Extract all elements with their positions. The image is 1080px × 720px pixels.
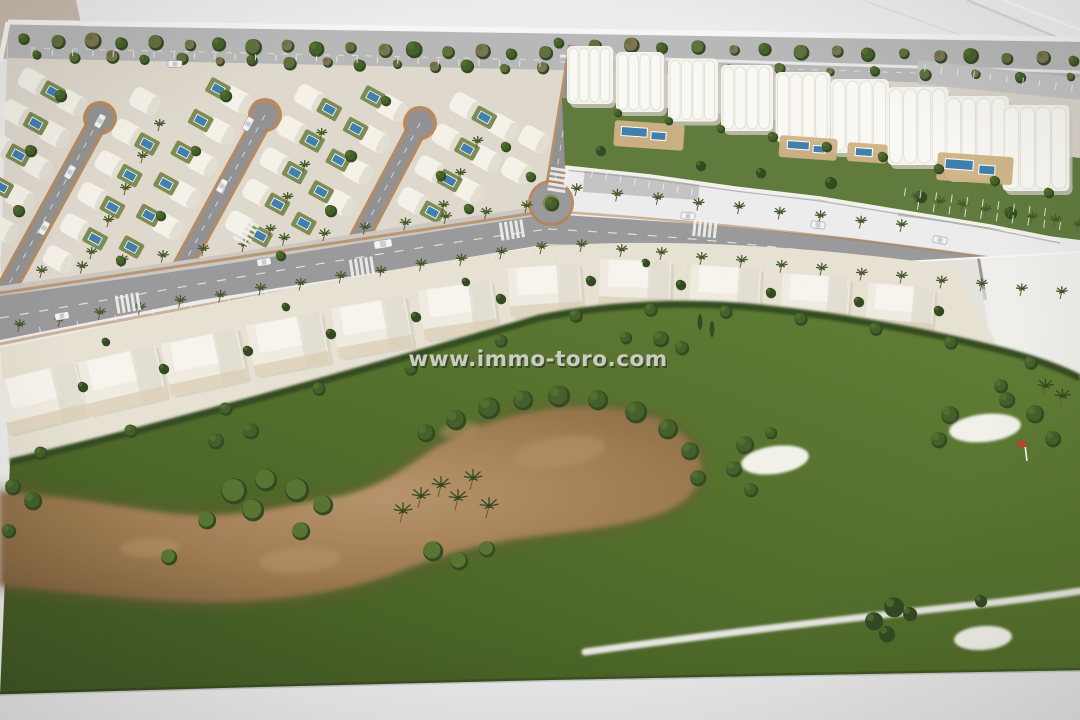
- model-photo-canvas: www.immo-toro.com www.immo-toro.com: [0, 0, 1080, 720]
- photo-architectural-model: www.immo-toro.com www.immo-toro.com: [0, 0, 1080, 720]
- watermark-text: www.immo-toro.com: [408, 347, 667, 372]
